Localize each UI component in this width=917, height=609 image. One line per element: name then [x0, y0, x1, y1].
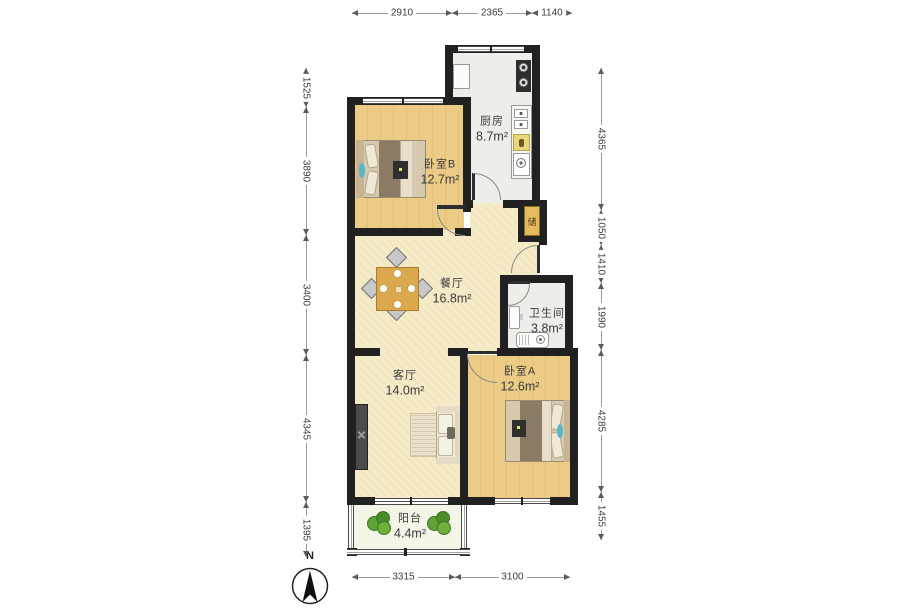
- dimension-arrow: [598, 68, 604, 74]
- wall: [518, 236, 547, 242]
- wall: [448, 497, 468, 505]
- dimension-value: 1050: [596, 213, 607, 241]
- dimension-value: 3890: [301, 157, 312, 185]
- dimension-value: 1395: [301, 515, 312, 543]
- washing-machine-door: [516, 158, 526, 168]
- plate: [393, 300, 402, 309]
- dimension-value: 1410: [596, 250, 607, 278]
- stove-burner: [519, 63, 528, 72]
- dimension-value: 1455: [596, 502, 607, 530]
- plate: [379, 284, 388, 293]
- dimension-arrow: [598, 283, 604, 289]
- dimension-arrow: [566, 10, 572, 16]
- dimension-arrow: [598, 350, 604, 356]
- wall: [497, 348, 578, 356]
- storage-closet: 储: [524, 206, 540, 236]
- dimension-value: 2365: [478, 8, 506, 19]
- wall: [565, 275, 573, 356]
- dimension-arrow: [455, 574, 461, 580]
- wall: [347, 348, 380, 356]
- wall: [550, 497, 578, 505]
- dimension-arrow: [303, 107, 309, 113]
- north-arrow-icon: [290, 562, 330, 606]
- room-name: 阳台: [394, 510, 426, 526]
- dimension-arrow: [532, 10, 538, 16]
- room-name: 卫生间: [529, 305, 565, 321]
- window-mullion: [402, 97, 404, 105]
- room-area: 14.0m²: [386, 384, 425, 398]
- window-mullion: [521, 497, 523, 505]
- dimension-arrow: [564, 574, 570, 580]
- room-name: 卧室A: [501, 363, 540, 379]
- dimension-value: 1140: [538, 8, 566, 19]
- dimension-arrow: [598, 492, 604, 498]
- potted-plant: [367, 511, 391, 535]
- sink-basin: [514, 109, 528, 118]
- room-label-dining-room: 餐厅16.8m²: [433, 275, 472, 306]
- north-compass: N: [290, 550, 330, 609]
- dimension-value: 3400: [301, 281, 312, 309]
- bedside-lamp: [517, 426, 520, 429]
- dimension-arrow: [452, 10, 458, 16]
- dimension-arrow: [303, 235, 309, 241]
- window-mullion: [404, 548, 407, 556]
- plate: [407, 284, 416, 293]
- room-area: 4.4m²: [394, 527, 426, 541]
- wall: [570, 348, 578, 505]
- room-label-bedroom-a: 卧室A12.6m²: [501, 363, 540, 394]
- room-name: 客厅: [386, 367, 425, 383]
- room-area: 12.7m²: [421, 173, 460, 187]
- bed-decor: [557, 424, 563, 438]
- north-label: N: [290, 550, 330, 562]
- floor-plan: 储 N 厨房8.7m²卧室B12.7m²餐厅16.8m²卫生间3.8m²客厅14…: [0, 0, 917, 609]
- bathroom-sink: [509, 306, 520, 329]
- room-area: 3.8m²: [529, 322, 565, 336]
- window-mullion: [490, 45, 492, 53]
- wall: [445, 45, 453, 102]
- dimension-arrow: [303, 551, 309, 557]
- dimension-value: 2910: [388, 8, 416, 19]
- wall: [532, 45, 540, 208]
- fridge: [453, 64, 470, 89]
- balcony-window-right: [461, 505, 467, 548]
- sofa-arm: [436, 406, 462, 413]
- plate: [393, 269, 402, 278]
- room-label-bathroom: 卫生间3.8m²: [529, 305, 565, 336]
- bed-decor: [359, 163, 365, 178]
- room-area: 12.6m²: [501, 380, 540, 394]
- sofa-cushion: [438, 436, 453, 456]
- room-name: 餐厅: [433, 275, 472, 291]
- dimension-arrow: [352, 10, 358, 16]
- room-area: 16.8m²: [433, 292, 472, 306]
- dimension-arrow: [598, 534, 604, 540]
- dimension-value: 4365: [596, 125, 607, 153]
- wall: [500, 275, 508, 356]
- bed-duvet-fold: [542, 401, 552, 461]
- window-mullion: [410, 497, 412, 505]
- wall: [347, 97, 355, 505]
- rug: [410, 413, 437, 457]
- room-name: 厨房: [476, 113, 508, 129]
- dimension-value: 3315: [389, 572, 417, 583]
- wall: [347, 228, 443, 236]
- sink-basin: [514, 120, 528, 129]
- sofa-arm: [436, 457, 462, 464]
- room-area: 8.7m²: [476, 130, 508, 144]
- dimension-arrow: [352, 574, 358, 580]
- table-centerpiece: [395, 286, 402, 293]
- potted-plant: [427, 511, 451, 535]
- balcony-window-bottom: [347, 549, 470, 555]
- dimension-arrow: [303, 502, 309, 508]
- room-label-living-room: 客厅14.0m²: [386, 367, 425, 398]
- wall: [463, 100, 471, 212]
- bedside-lamp: [399, 168, 402, 171]
- plant-leaf: [437, 521, 451, 535]
- storage-label: 储: [527, 215, 536, 228]
- dimension-value: 1990: [596, 302, 607, 330]
- wall: [347, 497, 375, 505]
- balcony-window-left: [348, 505, 354, 548]
- dimension-value: 3100: [498, 572, 526, 583]
- room-label-bedroom-b: 卧室B12.7m²: [421, 156, 460, 187]
- cutting-board-item: [519, 139, 524, 147]
- dimension-value: 4285: [596, 407, 607, 435]
- wall: [460, 348, 468, 505]
- dimension-arrow: [303, 355, 309, 361]
- room-label-balcony: 阳台4.4m²: [394, 510, 426, 541]
- bathroom-sink-tap: [520, 314, 523, 320]
- sofa-pillow: [447, 427, 455, 439]
- dimension-value: 4345: [301, 414, 312, 442]
- dimension-value: 1525: [301, 73, 312, 101]
- plant-leaf: [377, 521, 391, 535]
- bathtub-drain: [536, 335, 545, 344]
- stove-burner: [519, 78, 528, 87]
- room-label-kitchen: 厨房8.7m²: [476, 113, 508, 144]
- room-name: 卧室B: [421, 156, 460, 172]
- bathtub-ridges: [519, 335, 531, 345]
